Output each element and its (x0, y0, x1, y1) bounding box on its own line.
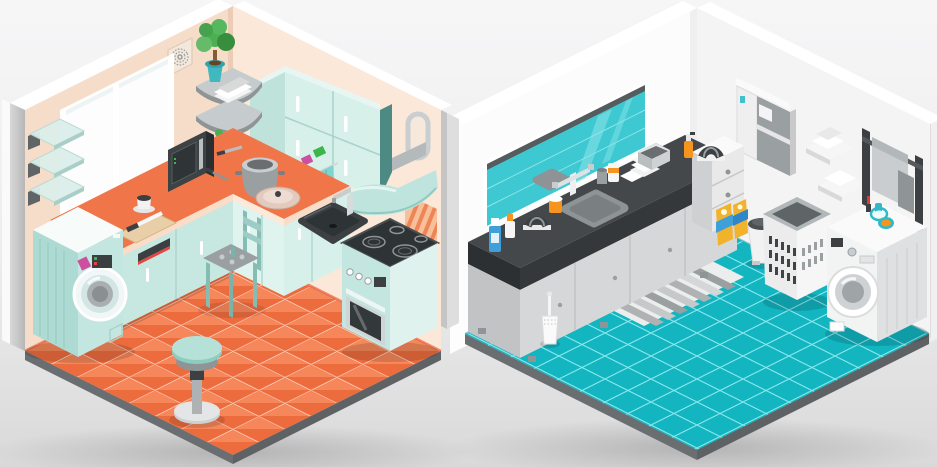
tube-cup (608, 163, 619, 182)
drawer-knob (726, 193, 731, 198)
stove-knob (356, 273, 362, 279)
stool-seat (172, 336, 222, 360)
cabinet-side (790, 109, 796, 176)
handle (200, 241, 203, 255)
cabinet-foot (700, 272, 708, 278)
detergent-drawer (860, 256, 874, 263)
pot-handle (278, 171, 285, 175)
chair-leg (206, 262, 210, 308)
handle (298, 228, 301, 240)
washer-panel (92, 255, 112, 268)
orange-jar (549, 196, 563, 213)
illustration-canvas: Isometric interiors illustration: kitche… (0, 0, 937, 467)
handle (296, 96, 300, 112)
stove-knob (365, 278, 371, 284)
window-mullion (113, 82, 119, 196)
outer-wall-face-left (10, 103, 25, 351)
handle (344, 160, 348, 176)
door-knob (613, 276, 617, 280)
drain (329, 224, 337, 228)
chair-leg (253, 262, 257, 308)
handle (146, 268, 149, 282)
handle (344, 116, 348, 132)
outer-wall-strip (441, 110, 447, 329)
outer-wall-strip-light (447, 113, 459, 329)
gray-cup (597, 168, 607, 184)
microwave-handle (199, 138, 203, 170)
handle (296, 140, 300, 156)
door-knob (668, 248, 672, 252)
cabinet-foot (528, 356, 536, 362)
cabinet-foot (478, 328, 486, 334)
cabinet-label (740, 96, 745, 103)
isometric-rooms-illustration: Isometric interiors illustration: kitche… (0, 0, 937, 467)
filter-door (830, 322, 844, 331)
bin-pedal (752, 261, 760, 265)
pan-lid (256, 187, 300, 209)
door-knob (558, 303, 562, 307)
washer-drum (842, 281, 864, 303)
washer-display (831, 238, 843, 247)
outer-wall-sliver-right (930, 118, 937, 342)
washer-knob (848, 248, 856, 256)
glass-wall-shelves (28, 119, 84, 206)
drum-inner (92, 286, 108, 302)
stove-display (374, 277, 386, 287)
drawer-side (692, 152, 712, 232)
lid-knob (275, 191, 281, 197)
pot-handle (235, 171, 242, 175)
washer-label (113, 234, 120, 238)
chair-leg (229, 272, 233, 318)
outer-wall-sliver (2, 99, 10, 344)
cabinet-foot (600, 322, 608, 328)
stove-knob (347, 269, 353, 275)
chair-leg (231, 246, 235, 258)
drawer-knob (726, 170, 731, 175)
